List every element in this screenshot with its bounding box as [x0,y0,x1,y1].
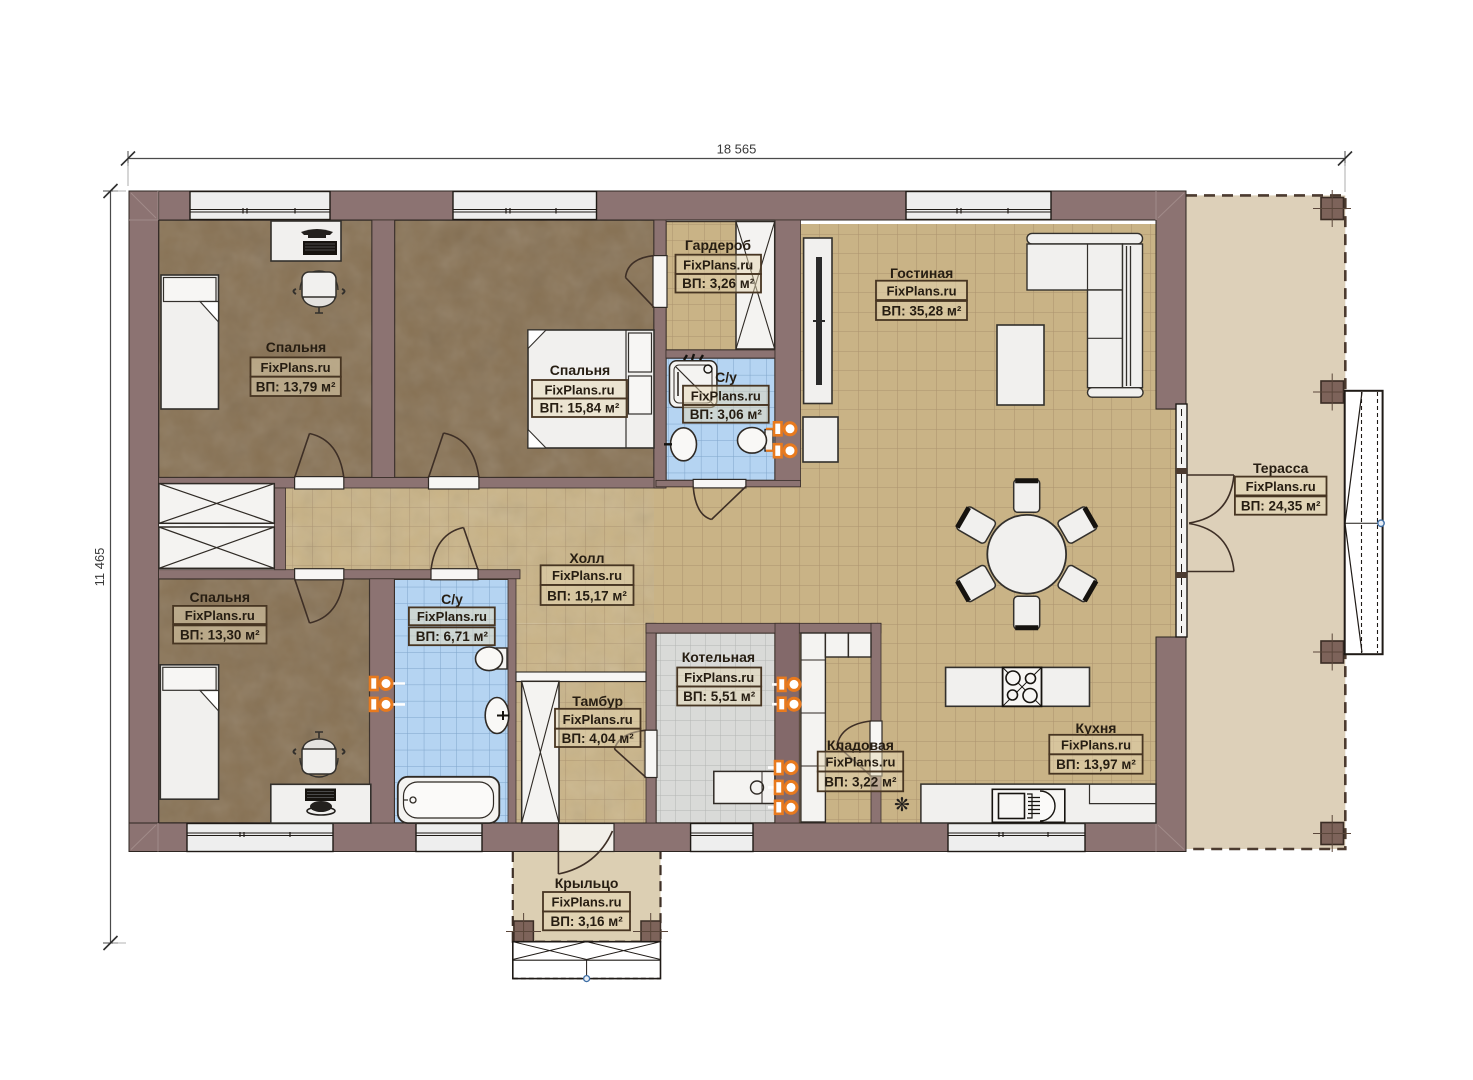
svg-text:ВП: 15,17 м²: ВП: 15,17 м² [547,588,627,603]
svg-text:11 465: 11 465 [92,548,107,587]
svg-text:ВП: 24,35 м²: ВП: 24,35 м² [1241,499,1321,514]
svg-text:18 565: 18 565 [717,142,757,157]
svg-text:Тамбур: Тамбур [572,693,623,709]
svg-text:ВП: 5,51 м²: ВП: 5,51 м² [683,689,756,704]
svg-text:FixPlans.ru: FixPlans.ru [552,568,622,583]
svg-text:Кладовая: Кладовая [827,737,894,753]
svg-text:FixPlans.ru: FixPlans.ru [691,388,761,403]
svg-text:Спальня: Спальня [266,339,326,355]
svg-text:❋: ❋ [894,795,910,816]
svg-text:Спальня: Спальня [190,589,250,605]
svg-text:Гостиная: Гостиная [890,265,953,281]
svg-text:Крыльцо: Крыльцо [555,875,619,891]
svg-text:FixPlans.ru: FixPlans.ru [261,360,331,375]
svg-text:Терасса: Терасса [1253,460,1309,476]
svg-text:FixPlans.ru: FixPlans.ru [886,283,956,298]
svg-text:Кухня: Кухня [1076,720,1117,736]
svg-text:ВП: 3,26 м²: ВП: 3,26 м² [682,276,755,291]
svg-text:ВП: 3,06 м²: ВП: 3,06 м² [690,407,763,422]
svg-text:FixPlans.ru: FixPlans.ru [1061,738,1131,753]
svg-text:FixPlans.ru: FixPlans.ru [1246,479,1316,494]
svg-text:ВП: 35,28 м²: ВП: 35,28 м² [882,304,962,319]
svg-text:FixPlans.ru: FixPlans.ru [563,712,633,727]
svg-text:ВП: 15,84 м²: ВП: 15,84 м² [540,401,620,416]
svg-text:Холл: Холл [569,550,604,566]
svg-text:Спальня: Спальня [550,362,610,378]
svg-text:Котельная: Котельная [682,649,755,665]
svg-text:FixPlans.ru: FixPlans.ru [825,755,895,770]
svg-text:FixPlans.ru: FixPlans.ru [552,895,622,910]
svg-text:ВП: 13,30 м²: ВП: 13,30 м² [180,628,260,643]
svg-text:С/у: С/у [715,369,737,385]
svg-text:FixPlans.ru: FixPlans.ru [683,257,753,272]
svg-text:FixPlans.ru: FixPlans.ru [684,670,754,685]
svg-text:Гардероб: Гардероб [685,237,752,253]
svg-text:ВП: 13,79 м²: ВП: 13,79 м² [256,379,336,394]
svg-text:ВП: 3,16 м²: ВП: 3,16 м² [550,914,623,929]
svg-text:ВП: 3,22 м²: ВП: 3,22 м² [824,774,897,789]
svg-text:С/у: С/у [441,591,463,607]
svg-text:ВП: 4,04 м²: ВП: 4,04 м² [562,731,635,746]
svg-text:ВП: 13,97 м²: ВП: 13,97 м² [1056,757,1136,772]
svg-text:FixPlans.ru: FixPlans.ru [185,608,255,623]
svg-text:FixPlans.ru: FixPlans.ru [544,382,614,397]
svg-text:ВП: 6,71 м²: ВП: 6,71 м² [416,629,489,644]
svg-text:FixPlans.ru: FixPlans.ru [417,609,487,624]
